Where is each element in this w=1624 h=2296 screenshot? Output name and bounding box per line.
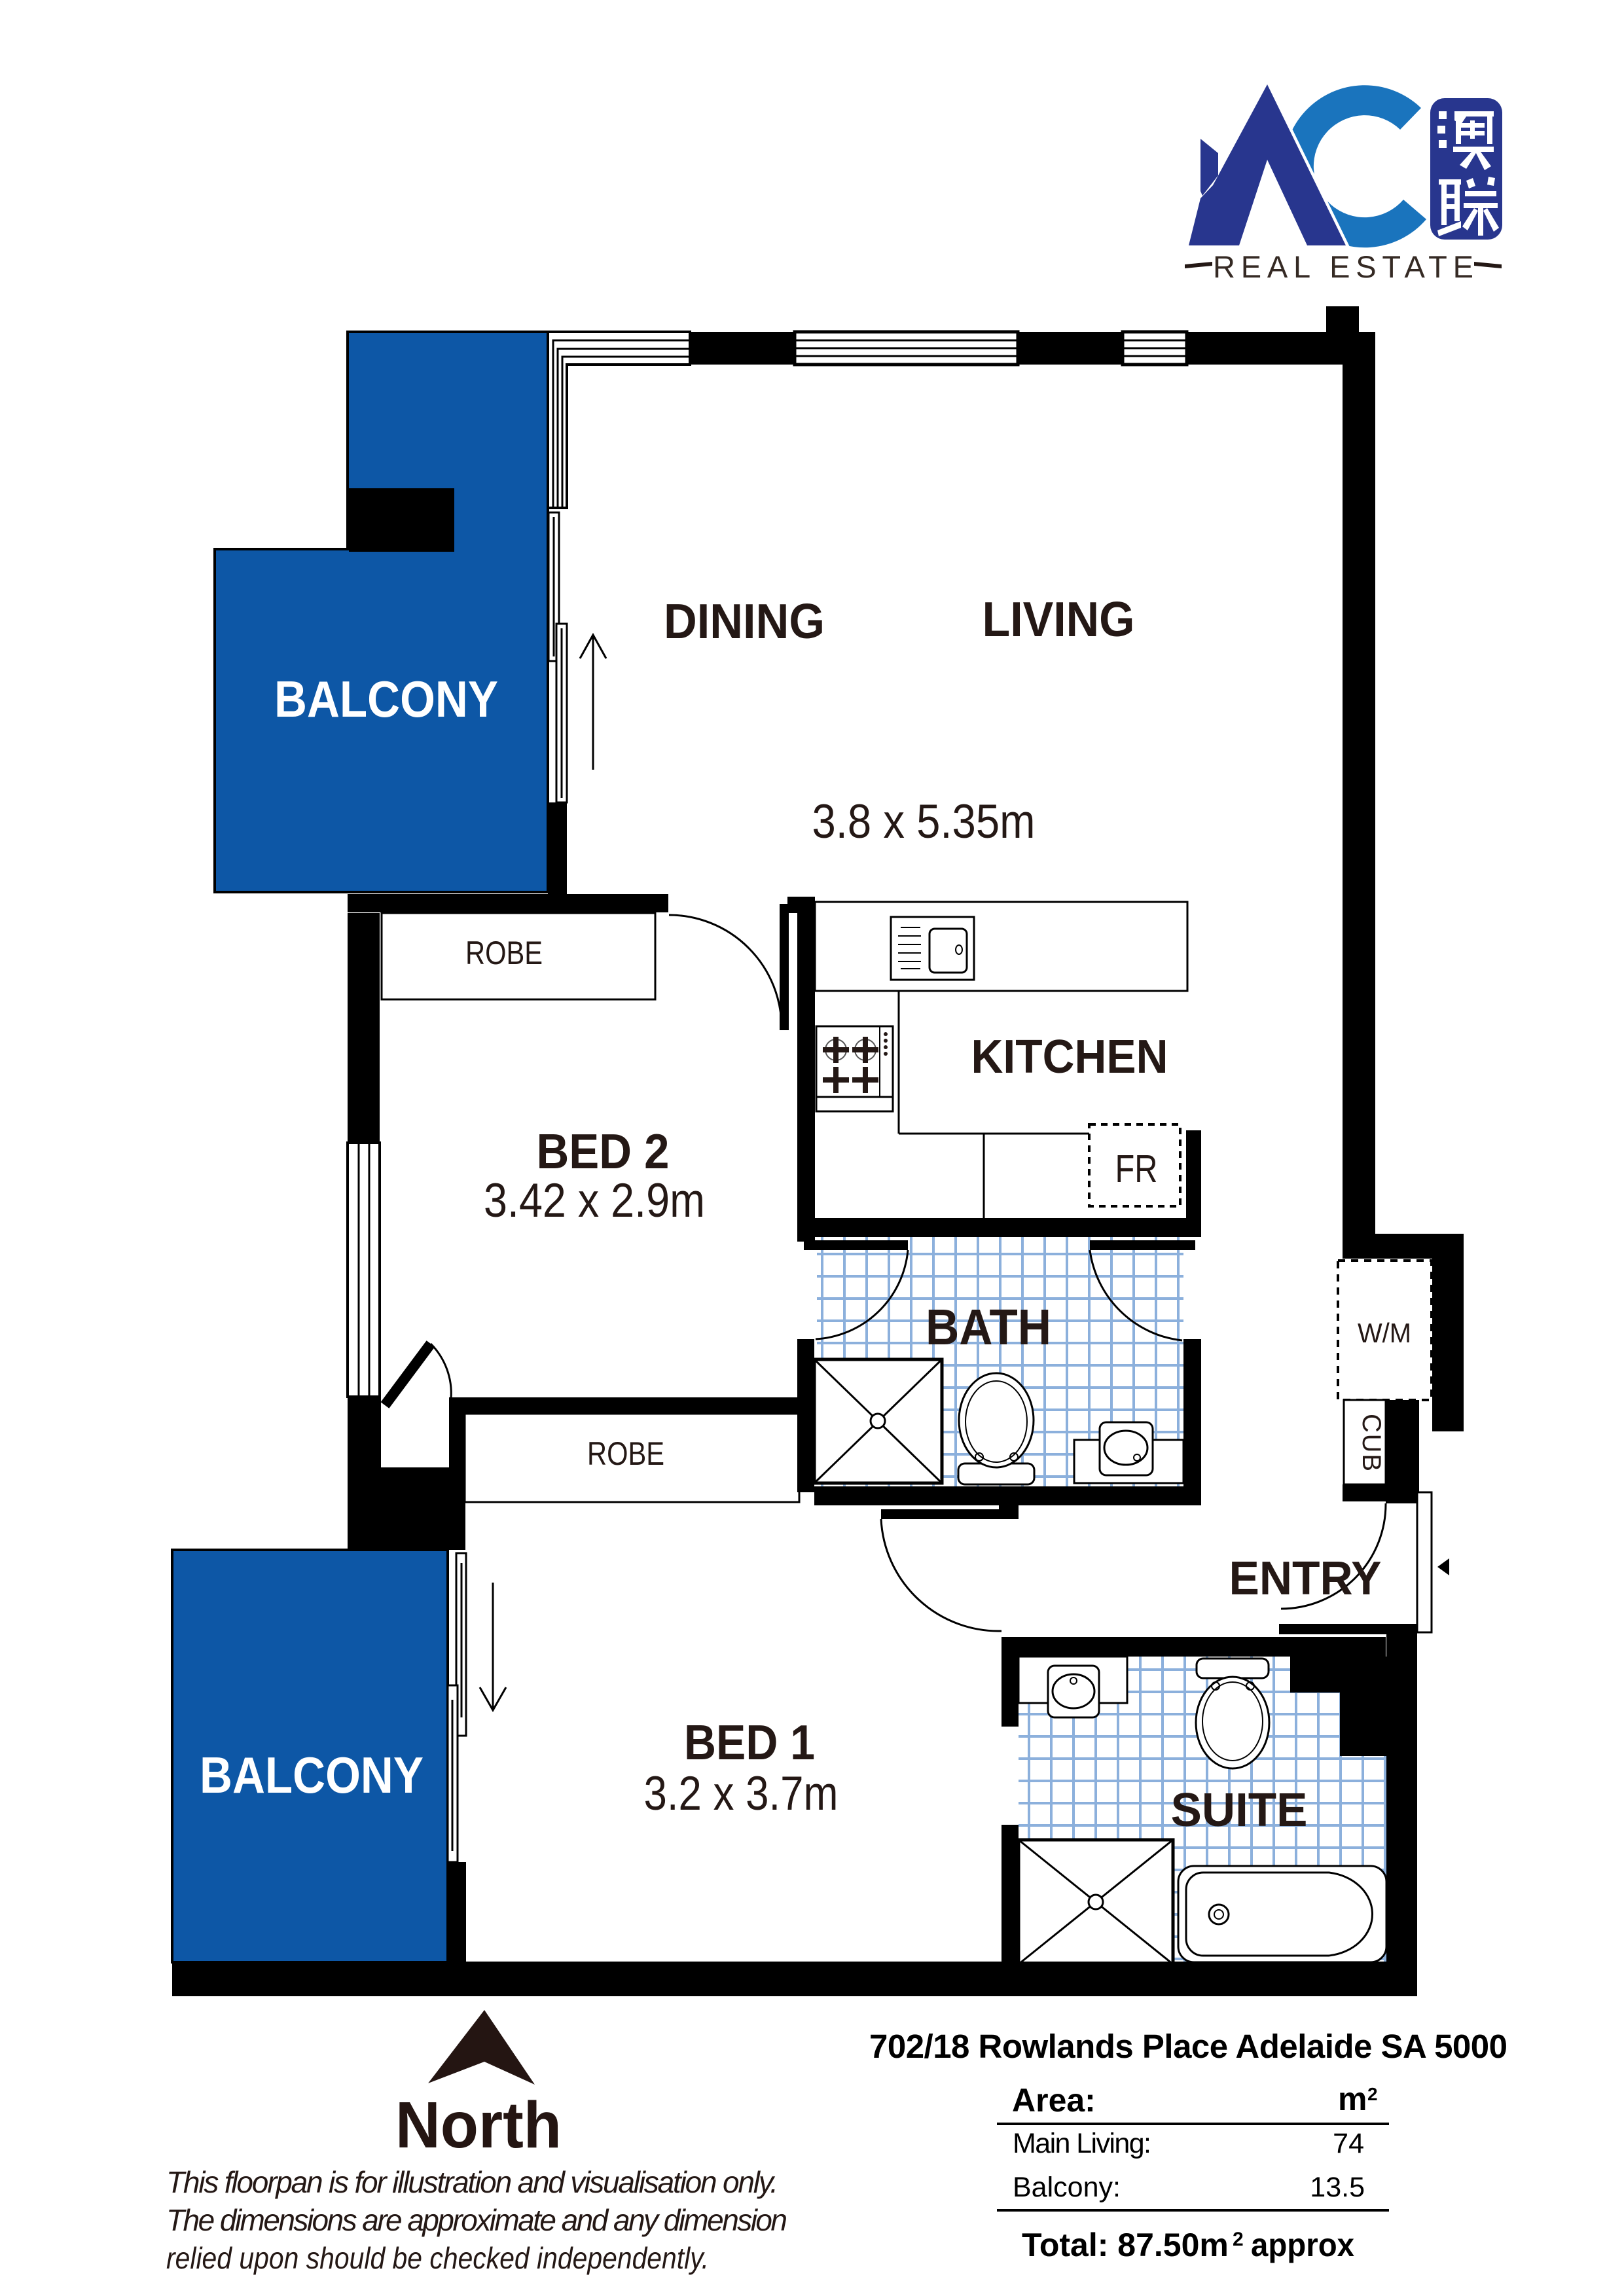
svg-text:ROBE: ROBE: [587, 1435, 664, 1472]
svg-text:3.2 x 3.7m: 3.2 x 3.7m: [644, 1767, 839, 1820]
svg-text:ROBE: ROBE: [465, 935, 543, 971]
svg-text:BED 2: BED 2: [537, 1124, 670, 1179]
svg-text:LIVING: LIVING: [983, 592, 1135, 647]
svg-text:The dimensions are approximate: The dimensions are approximate and any d…: [166, 2203, 787, 2237]
svg-text:702/18 Rowlands Place Adelaide: 702/18 Rowlands Place Adelaide SA 5000: [869, 2028, 1507, 2065]
svg-text:CUB: CUB: [1357, 1414, 1386, 1471]
svg-text:Main Living:: Main Living:: [1013, 2128, 1151, 2159]
svg-text:3.42 x 2.9m: 3.42 x 2.9m: [484, 1174, 705, 1227]
svg-text:Total: 87.50m: Total: 87.50m: [1022, 2227, 1229, 2263]
svg-text:BED 1: BED 1: [684, 1715, 815, 1770]
svg-text:BATH: BATH: [926, 1299, 1051, 1355]
svg-text:relied upon should be checked: relied upon should be checked independen…: [166, 2241, 709, 2275]
svg-text:13.5: 13.5: [1310, 2172, 1365, 2203]
svg-text:W/M: W/M: [1358, 1318, 1411, 1348]
svg-text:2: 2: [1233, 2229, 1244, 2250]
svg-text:3.8 x 5.35m: 3.8 x 5.35m: [812, 795, 1036, 848]
svg-text:Area:: Area:: [1012, 2082, 1096, 2119]
svg-text:North: North: [395, 2089, 562, 2162]
svg-text:REAL ESTATE: REAL ESTATE: [1213, 249, 1473, 284]
svg-text:2: 2: [1367, 2084, 1378, 2104]
svg-text:approx: approx: [1251, 2227, 1354, 2263]
svg-text:This floorpan is for illustrat: This floorpan is for illustration and vi…: [166, 2165, 778, 2199]
svg-text:ENTRY: ENTRY: [1229, 1552, 1382, 1605]
svg-text:DINING: DINING: [664, 594, 825, 649]
svg-text:74: 74: [1333, 2128, 1364, 2159]
svg-text:KITCHEN: KITCHEN: [971, 1031, 1168, 1083]
svg-text:FR: FR: [1115, 1147, 1158, 1191]
svg-text:m: m: [1338, 2081, 1367, 2117]
svg-text:SUITE: SUITE: [1171, 1784, 1308, 1837]
svg-text:BALCONY: BALCONY: [274, 670, 498, 728]
svg-text:Balcony:: Balcony:: [1013, 2172, 1121, 2203]
svg-text:BALCONY: BALCONY: [200, 1746, 424, 1804]
